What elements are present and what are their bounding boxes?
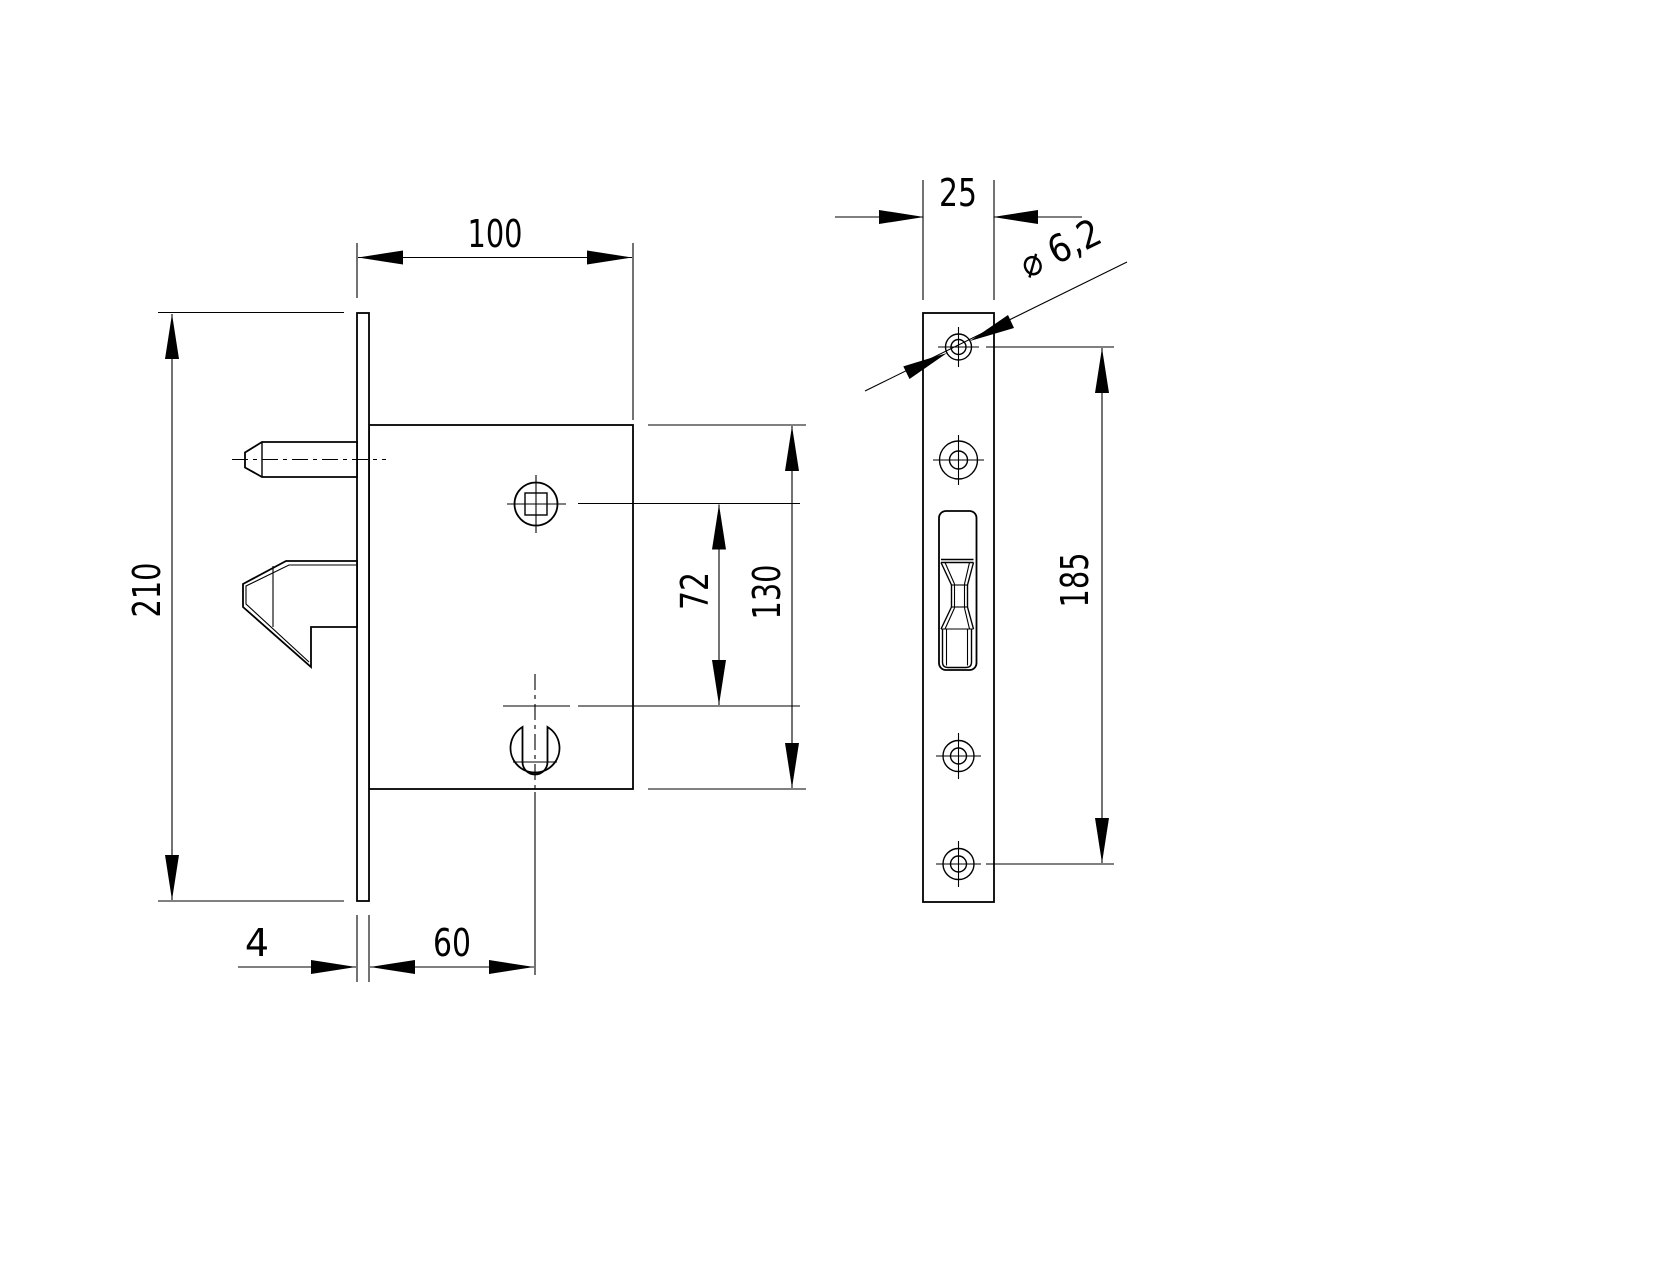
arrowhead	[1095, 348, 1109, 393]
lock-case	[369, 425, 633, 789]
hook-bolt	[243, 561, 357, 667]
dim-label-72: 72	[673, 572, 717, 610]
arrowhead	[311, 960, 356, 974]
arrowhead	[712, 660, 726, 705]
dim-label-210: 210	[125, 563, 169, 618]
arrowhead	[1095, 818, 1109, 863]
dim-backset: 60	[370, 792, 535, 975]
dim-label-4: 4	[245, 921, 269, 965]
dim-label-185: 185	[1053, 553, 1097, 608]
hook-outline	[243, 561, 357, 667]
dim-hole-diameter: ⌀ 6,2	[865, 210, 1127, 391]
arrowhead	[785, 743, 799, 788]
arrowhead	[358, 251, 403, 265]
dim-label-100: 100	[468, 212, 523, 256]
faceplate-front	[357, 313, 369, 901]
lock-technical-drawing: 100 210 72 130 4	[0, 0, 1680, 1261]
dim-faceplate-thickness: 4	[238, 915, 369, 982]
arrowhead	[785, 426, 799, 471]
dim-case-height: 130	[648, 425, 806, 789]
dim-label-25: 25	[939, 171, 977, 215]
dim-screw-spacing: 185	[986, 347, 1114, 864]
arrowhead	[879, 210, 924, 224]
front-view	[232, 313, 633, 901]
dim-label-130: 130	[745, 565, 789, 620]
arrowhead	[993, 210, 1038, 224]
drawing-sheet: 100 210 72 130 4	[0, 0, 1680, 1261]
arrowhead	[165, 314, 179, 359]
arrowhead	[165, 855, 179, 900]
arrowhead	[587, 251, 632, 265]
faceplate-view	[923, 313, 994, 902]
arrowhead	[370, 960, 415, 974]
dim-label-60: 60	[433, 921, 471, 965]
dim-case-depth: 100	[357, 212, 633, 420]
hook-slot	[939, 511, 977, 670]
arrowhead	[712, 505, 726, 550]
arrowhead	[489, 960, 534, 974]
